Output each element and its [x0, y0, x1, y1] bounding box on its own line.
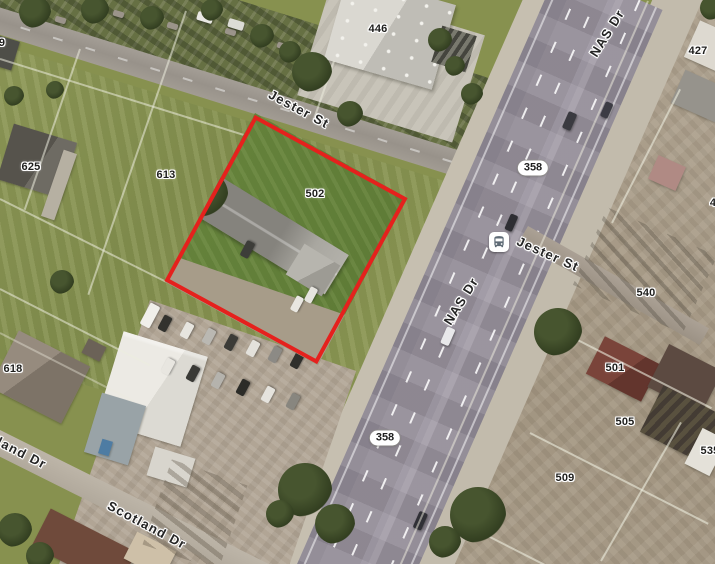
satellite-map[interactable]: 94464276256135025406185015055355094Jeste… — [0, 0, 715, 564]
parcel-number-label: 501 — [606, 362, 625, 374]
parcel-number-label: 502 — [306, 188, 325, 200]
parcel-number-label: 4 — [710, 197, 715, 209]
parcel-number-label: 509 — [556, 472, 575, 484]
parcel-number-label: 505 — [616, 416, 635, 428]
parcel-number-label: 9 — [0, 37, 5, 49]
parcel-number-label: 625 — [22, 161, 41, 173]
street-name-label: Scotland Dr — [105, 498, 189, 552]
route-shield-358: 358 — [370, 431, 400, 446]
street-name-label: Jester St — [515, 234, 582, 275]
bus-icon[interactable] — [489, 232, 509, 252]
route-shield-358: 358 — [518, 161, 548, 176]
street-name-label: land Dr — [0, 434, 49, 472]
street-name-label: Jester St — [266, 87, 332, 132]
parcel-number-label: 446 — [369, 23, 388, 35]
street-name-label: NAS Dr — [441, 274, 482, 327]
map-labels-layer: 94464276256135025406185015055355094Jeste… — [0, 0, 715, 564]
parcel-number-label: 613 — [157, 169, 176, 181]
parcel-number-label: 618 — [4, 363, 23, 375]
parcel-number-label: 427 — [689, 45, 708, 57]
parcel-number-label: 535 — [701, 445, 715, 457]
street-name-label: NAS Dr — [587, 6, 628, 59]
parcel-number-label: 540 — [637, 287, 656, 299]
